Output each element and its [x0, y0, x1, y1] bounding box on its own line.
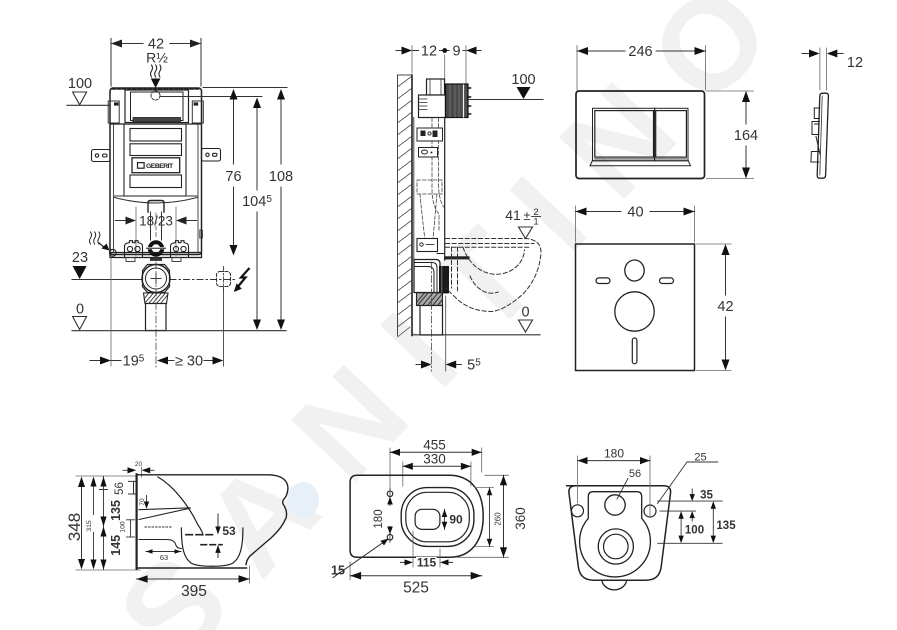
svg-text:±: ±: [523, 208, 530, 223]
svg-text:360: 360: [513, 507, 528, 530]
svg-text:23: 23: [72, 250, 88, 266]
svg-text:525: 525: [403, 580, 429, 597]
svg-text:100: 100: [511, 72, 535, 88]
svg-text:1045: 1045: [242, 194, 272, 210]
svg-text:12: 12: [421, 44, 437, 60]
svg-text:315: 315: [86, 520, 93, 532]
svg-text:348: 348: [65, 513, 84, 541]
svg-text:395: 395: [181, 583, 207, 600]
svg-text:R½: R½: [146, 50, 168, 66]
svg-text:455: 455: [423, 438, 446, 453]
svg-text:41: 41: [505, 207, 521, 223]
svg-text:53: 53: [222, 524, 236, 538]
svg-text:108: 108: [269, 169, 293, 185]
svg-text:42: 42: [717, 299, 733, 315]
svg-text:40: 40: [627, 205, 643, 221]
svg-text:0: 0: [76, 302, 84, 318]
svg-text:164: 164: [734, 128, 758, 144]
svg-text:90: 90: [449, 513, 463, 527]
svg-text:1: 1: [533, 217, 538, 228]
svg-text:115: 115: [417, 556, 437, 570]
svg-text:76: 76: [225, 169, 241, 185]
svg-text:246: 246: [628, 44, 652, 60]
svg-text:9: 9: [452, 44, 460, 60]
svg-text:145: 145: [109, 535, 123, 556]
svg-text:195: 195: [123, 354, 145, 370]
svg-text:GEBERIT: GEBERIT: [146, 163, 174, 170]
svg-text:18/23: 18/23: [139, 214, 173, 229]
svg-text:260: 260: [493, 512, 502, 526]
svg-text:100: 100: [685, 525, 704, 537]
svg-text:0: 0: [521, 305, 529, 321]
svg-text:56: 56: [629, 468, 641, 480]
svg-text:180: 180: [373, 509, 385, 528]
svg-text:330: 330: [423, 452, 446, 467]
svg-text:35: 35: [700, 490, 713, 502]
svg-text:12: 12: [847, 55, 863, 71]
svg-text:100: 100: [120, 521, 127, 533]
svg-text:180: 180: [604, 447, 624, 461]
svg-text:135: 135: [716, 520, 736, 532]
svg-text:≥ 30: ≥ 30: [175, 354, 203, 370]
svg-text:56: 56: [114, 482, 126, 495]
svg-text:135: 135: [109, 500, 123, 521]
svg-text:100: 100: [68, 76, 92, 92]
svg-text:63: 63: [160, 553, 168, 562]
